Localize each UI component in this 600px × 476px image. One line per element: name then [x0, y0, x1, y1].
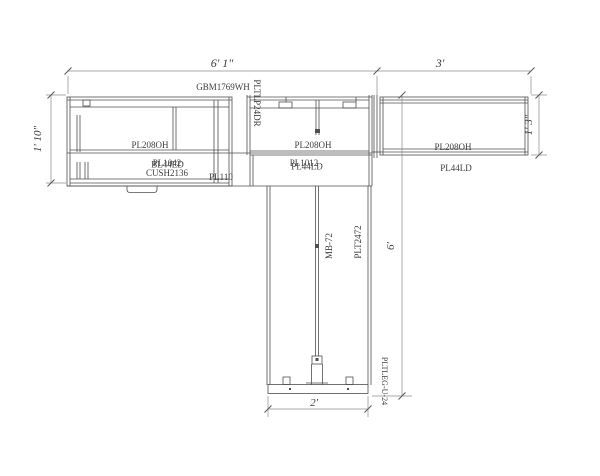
dim-left-height: 1' 10"	[32, 126, 44, 153]
dimension-right: 1' 3"	[523, 92, 547, 159]
cushion-front-profile	[127, 186, 157, 193]
drawing-canvas: 6' 1" 3' 1' 10" 1' 3" 6' 2' GBM1769WH P	[0, 0, 600, 476]
label-panel: PLT2472	[353, 225, 363, 258]
label-left-filler: PL110	[209, 172, 233, 182]
label-left-overhead: PL208OH	[131, 140, 169, 150]
label-top-drawer-unit: PLTLP24DR	[252, 79, 262, 126]
dim-total-height: 6'	[385, 241, 397, 250]
dimension-total-height: 6'	[372, 92, 412, 400]
dim-top-width: 6' 1"	[211, 56, 235, 70]
label-center-lower-b: PL44LD	[291, 162, 323, 172]
pedestal-column	[267, 186, 371, 385]
dim-right-height: 1' 3"	[523, 114, 535, 135]
dimension-top: 6' 1" 3'	[65, 56, 535, 95]
label-right-lower: PL44LD	[440, 163, 472, 173]
foot-plate	[268, 377, 368, 394]
label-mount-bracket: MB-72	[324, 233, 334, 259]
label-cushion: CUSH2136	[146, 168, 189, 178]
part-labels: GBM1769WH PLTLP24DR PL208OH PL208OH PL20…	[131, 79, 472, 405]
label-countertop: GBM1769WH	[196, 82, 250, 92]
dimension-left: 1' 10"	[32, 92, 66, 187]
cad-elevation-drawing: 6' 1" 3' 1' 10" 1' 3" 6' 2' GBM1769WH P	[0, 0, 600, 476]
label-leg: PLTLEG-U-24	[380, 357, 389, 405]
dim-top-right-width: 3'	[435, 56, 445, 70]
label-center-overhead: PL208OH	[294, 140, 332, 150]
dim-base-width: 2'	[310, 397, 319, 409]
label-right-overhead: PL208OH	[434, 142, 472, 152]
dimension-base: 2'	[265, 396, 372, 417]
